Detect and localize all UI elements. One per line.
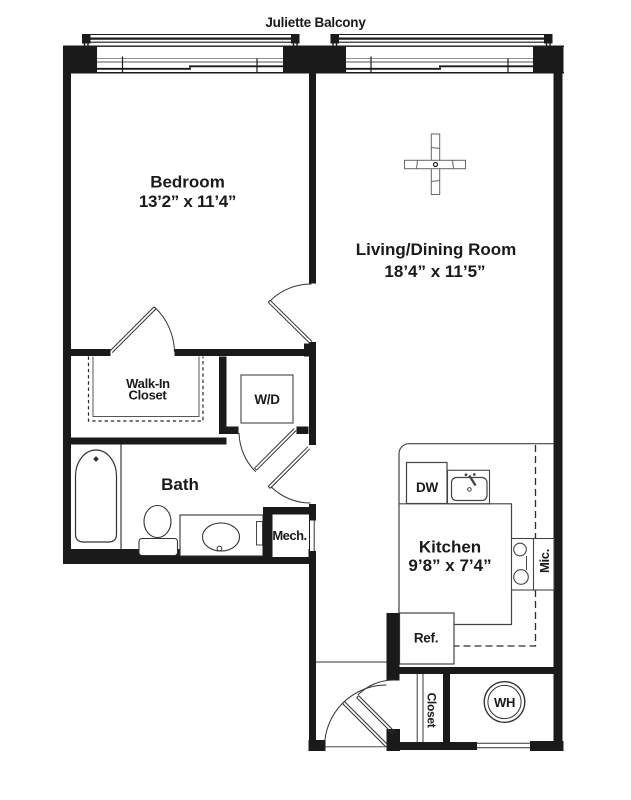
- svg-text:Living/Dining Room: Living/Dining Room: [356, 240, 517, 259]
- svg-text:Mech.: Mech.: [272, 528, 306, 543]
- svg-text:Closet: Closet: [129, 388, 168, 403]
- svg-text:Bath: Bath: [161, 475, 199, 494]
- svg-text:Mic.: Mic.: [537, 549, 552, 573]
- svg-text:Closet: Closet: [425, 693, 439, 728]
- svg-text:13’2” x 11’4”: 13’2” x 11’4”: [139, 192, 236, 211]
- svg-text:Bedroom: Bedroom: [150, 173, 225, 192]
- svg-text:18’4” x 11’5”: 18’4” x 11’5”: [384, 262, 485, 281]
- svg-text:Juliette Balcony: Juliette Balcony: [265, 15, 366, 30]
- svg-text:Ref.: Ref.: [414, 631, 438, 646]
- svg-text:Kitchen: Kitchen: [419, 538, 481, 557]
- svg-text:WH: WH: [494, 695, 515, 710]
- svg-text:DW: DW: [416, 480, 438, 495]
- svg-text:W/D: W/D: [254, 392, 280, 407]
- svg-text:9’8” x 7’4”: 9’8” x 7’4”: [408, 556, 491, 575]
